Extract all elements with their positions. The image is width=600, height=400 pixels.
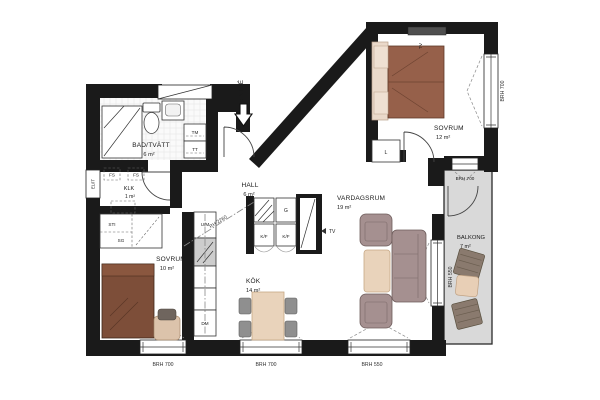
wall-entry-diagonal: [249, 27, 377, 168]
dryer-label: TT: [192, 147, 198, 152]
kitchen-name: KÖK: [246, 277, 261, 285]
living-name: VARDAGSRUM: [337, 195, 385, 202]
wall-living-right-mid: [432, 214, 444, 242]
mid-block: [254, 198, 326, 252]
dishwasher-label: DM: [201, 321, 208, 326]
shaft-2-label: FS: [133, 173, 139, 178]
kitchen-cabinets: [194, 212, 216, 336]
toilet-tank: [143, 103, 160, 112]
wall-kitchen: [182, 212, 194, 340]
linen-closet-label: L: [385, 150, 388, 156]
bathroom-name: BAD/TVÄTT: [132, 141, 170, 149]
bathroom-door: [142, 172, 170, 200]
wall-klk-right: [170, 160, 182, 208]
sink-basin: [166, 104, 181, 116]
tv-bedroom-unit: [408, 27, 446, 35]
washing-machine-label: TM: [192, 130, 199, 135]
dining-table: [252, 292, 284, 340]
pillow-1: [374, 46, 388, 68]
window-label-bedroom-right: BRH 700: [500, 80, 506, 101]
fridge-freezer-2-label: K/F: [282, 234, 289, 239]
bedroom-door: [404, 132, 434, 162]
bedroom-large-furniture: [372, 27, 446, 162]
dining-chair-1: [239, 298, 251, 314]
reading-chair-back: [158, 309, 176, 320]
balcony-area: 7 m²: [460, 244, 471, 250]
living-furniture: [360, 214, 426, 328]
window-label-balcony-side: BRH 550: [448, 266, 454, 287]
tv-bedroom-label: TV: [418, 42, 424, 49]
wall-top-left: [86, 84, 162, 98]
coffee-table: [364, 250, 390, 292]
window-label-bottom-right: BRH 550: [361, 362, 382, 368]
balcony-name: BALKONG: [457, 235, 486, 241]
floor-plan-svg: BAD/TVÄTT 6 m² HALL 6 m² KLK 1 m² SOVRUM…: [0, 0, 600, 400]
window-label-bottom-middle: BRH 700: [255, 362, 276, 368]
riser-label: STI: [108, 222, 115, 227]
wall-bathroom-right: [206, 98, 218, 162]
bedroom-small-area: 10 m²: [160, 266, 174, 272]
balcony-table: [455, 275, 479, 297]
klk-area: 1 m²: [125, 194, 135, 200]
window-label-bottom-left: BRH 700: [152, 362, 173, 368]
oven-microwave-label: U/M: [201, 222, 210, 227]
sofa: [392, 230, 426, 302]
shaft-3-label: FS: [120, 206, 126, 211]
wall-left: [86, 84, 100, 348]
shaft-top: [158, 85, 212, 99]
hall-area: 6 m²: [243, 192, 254, 198]
sti-sg-closet: [100, 214, 162, 248]
electrical-cabinet-label: EL/IT: [91, 179, 96, 189]
dining-chair-3: [285, 298, 297, 314]
bedroom-small-name: SOVRUM: [156, 256, 186, 263]
pillow-2: [374, 92, 388, 114]
toilet-bowl: [144, 113, 159, 134]
wall-bathroom-bottom-left: [100, 160, 148, 172]
living-area: 19 m²: [337, 205, 351, 211]
bedroom-small-furniture: [102, 264, 180, 340]
kitchen-furniture: [239, 292, 297, 340]
bedroom-large-name: SOVRUM: [434, 125, 464, 132]
floor-plan: BAD/TVÄTT 6 m² HALL 6 m² KLK 1 m² SOVRUM…: [0, 0, 600, 400]
klk-name: KLK: [124, 186, 135, 192]
bathroom-area: 6 m²: [143, 152, 154, 158]
wall-living-right-low: [432, 304, 444, 346]
window-bedroom-right: [467, 54, 498, 128]
shaft-1-label: FS: [109, 173, 115, 178]
wall-stub-balcony-door: [428, 158, 444, 186]
window-label-balcony-top: BRH 700: [456, 176, 475, 181]
bedroom-large-area: 12 m²: [436, 135, 450, 141]
wardrobe-label: G: [284, 208, 288, 214]
fridge-freezer-1-label: K/F: [260, 234, 267, 239]
high-cabinet-hatched: [254, 198, 274, 222]
tv-living-label: TV: [329, 229, 336, 235]
dining-chair-4: [285, 321, 297, 337]
kitchen-area: 14 m²: [246, 288, 260, 294]
entrance-label: ENTRÉ: [238, 80, 245, 101]
wardrobe-small-label: SG: [118, 238, 125, 243]
dining-chair-2: [239, 321, 251, 337]
hall-name: HALL: [241, 182, 258, 189]
